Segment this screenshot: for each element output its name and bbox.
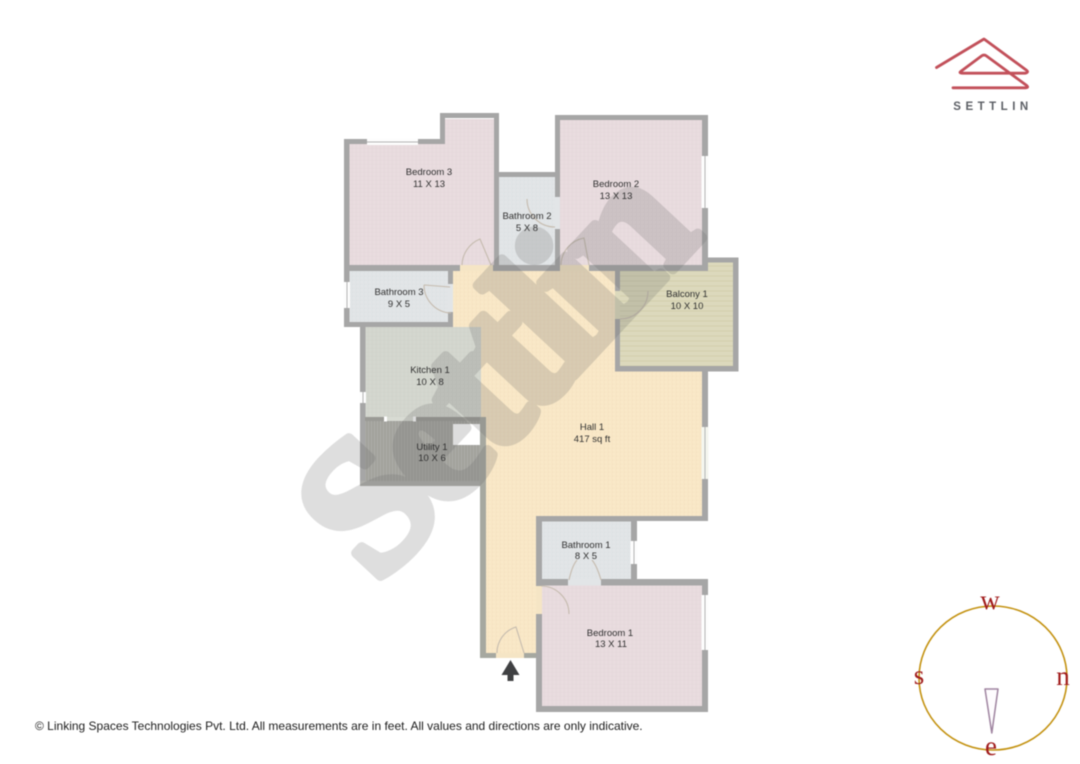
svg-text:Balcony 1: Balcony 1: [666, 289, 708, 300]
svg-text:9 X 5: 9 X 5: [388, 299, 410, 310]
svg-text:SETTLIN: SETTLIN: [953, 101, 1032, 113]
svg-text:Bathroom 1: Bathroom 1: [561, 540, 610, 551]
svg-text:Hall 1: Hall 1: [580, 422, 604, 433]
svg-text:w: w: [980, 585, 1000, 615]
svg-text:Bedroom 3: Bedroom 3: [406, 167, 452, 178]
svg-text:Kitchen 1: Kitchen 1: [410, 365, 450, 376]
svg-text:11 X 13: 11 X 13: [413, 179, 445, 190]
svg-text:n: n: [1056, 661, 1070, 691]
svg-text:13 X 11: 13 X 11: [595, 639, 627, 650]
svg-text:10 X 6: 10 X 6: [418, 453, 445, 464]
svg-text:s: s: [914, 660, 925, 690]
svg-text:Utility 1: Utility 1: [416, 442, 447, 453]
svg-text:10 X 10: 10 X 10: [671, 301, 704, 312]
svg-text:© Linking Spaces Technologies: © Linking Spaces Technologies Pvt. Ltd. …: [35, 719, 643, 733]
svg-text:8 X 5: 8 X 5: [575, 551, 597, 562]
svg-text:Bathroom 2: Bathroom 2: [502, 211, 551, 222]
svg-text:417 sq ft: 417 sq ft: [574, 434, 611, 445]
svg-text:e: e: [985, 731, 997, 761]
svg-text:5 X 8: 5 X 8: [516, 223, 538, 234]
svg-text:10 X 8: 10 X 8: [416, 377, 443, 388]
svg-text:Bedroom 1: Bedroom 1: [587, 628, 633, 639]
svg-text:13 X 13: 13 X 13: [600, 191, 633, 202]
svg-text:Bathroom 3: Bathroom 3: [374, 287, 423, 298]
svg-text:Bedroom 2: Bedroom 2: [593, 179, 639, 190]
